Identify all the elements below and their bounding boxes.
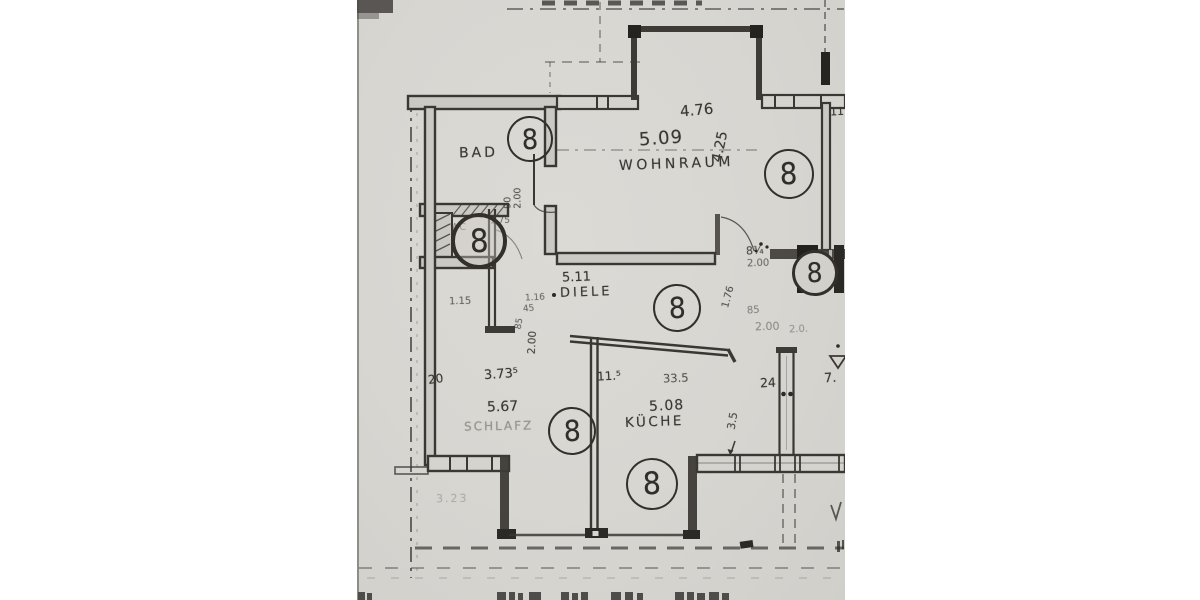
dimension-pillar: 24 (760, 377, 777, 390)
marker-value: 8 (780, 156, 799, 192)
marker-value: 8 (668, 291, 686, 326)
room-area-diele: 5.11 (562, 270, 591, 284)
dimension-diele-door-116: 1.16 (525, 293, 545, 303)
dimension-kueche-side: 3.5 (726, 411, 740, 430)
room-label-kueche: KÜCHE (625, 415, 684, 431)
dimension-wc-door-height: 2.00 (513, 188, 523, 209)
marker-value: 8 (807, 257, 824, 289)
marker-value: 8 (469, 222, 489, 261)
dimension-right-edge: 7. (824, 372, 837, 386)
floorplan-linework (357, 0, 845, 600)
room-area-wohnraum: 5.09 (638, 128, 683, 149)
room-label-schlafzimmer: SCHLAFZ (464, 419, 534, 432)
marker-value: 8 (521, 122, 539, 156)
marker-value: 8 (563, 414, 581, 449)
dimension-bad-niche: 1.15 (449, 297, 472, 308)
dimension-wohnraum-door-width: 8¾ (746, 244, 764, 256)
room-area-kueche: 5.08 (649, 398, 685, 414)
screenshot-canvas: BAD 5.09 WOHNRAUM 5.11 DIELE 5.67 SCHLAF… (0, 0, 1200, 600)
marker-value: 8 (642, 466, 661, 503)
dimension-wohnraum-width: 4.76 (679, 102, 714, 120)
dimension-kueche-width: 33.5 (663, 373, 689, 385)
dimension-shaft-85: 85 (747, 306, 760, 317)
dimension-schlaf-width: 3.73⁵ (484, 367, 519, 382)
dimension-wohnraum-door-height: 2.00 (747, 259, 770, 270)
dimension-faint-323: 3.23 (436, 493, 469, 505)
dimension-divider-thickness: 11.⁵ (597, 369, 622, 382)
room-area-schlafzimmer: 5.67 (487, 399, 519, 414)
scanned-floor-plan: BAD 5.09 WOHNRAUM 5.11 DIELE 5.67 SCHLAF… (357, 0, 845, 600)
dimension-shaft-200: 2.00 (755, 321, 780, 333)
room-label-bad: BAD (459, 146, 498, 161)
dimension-top-right: 11. (830, 106, 845, 118)
dimension-left-wall: 20 (427, 372, 444, 386)
dimension-diele-door-height: 2.00 (527, 331, 539, 355)
dimension-diele-door-45: 45 (523, 304, 535, 314)
dimension-shaft-20: 2.0. (789, 325, 808, 336)
room-label-diele: DIELE (560, 285, 613, 300)
